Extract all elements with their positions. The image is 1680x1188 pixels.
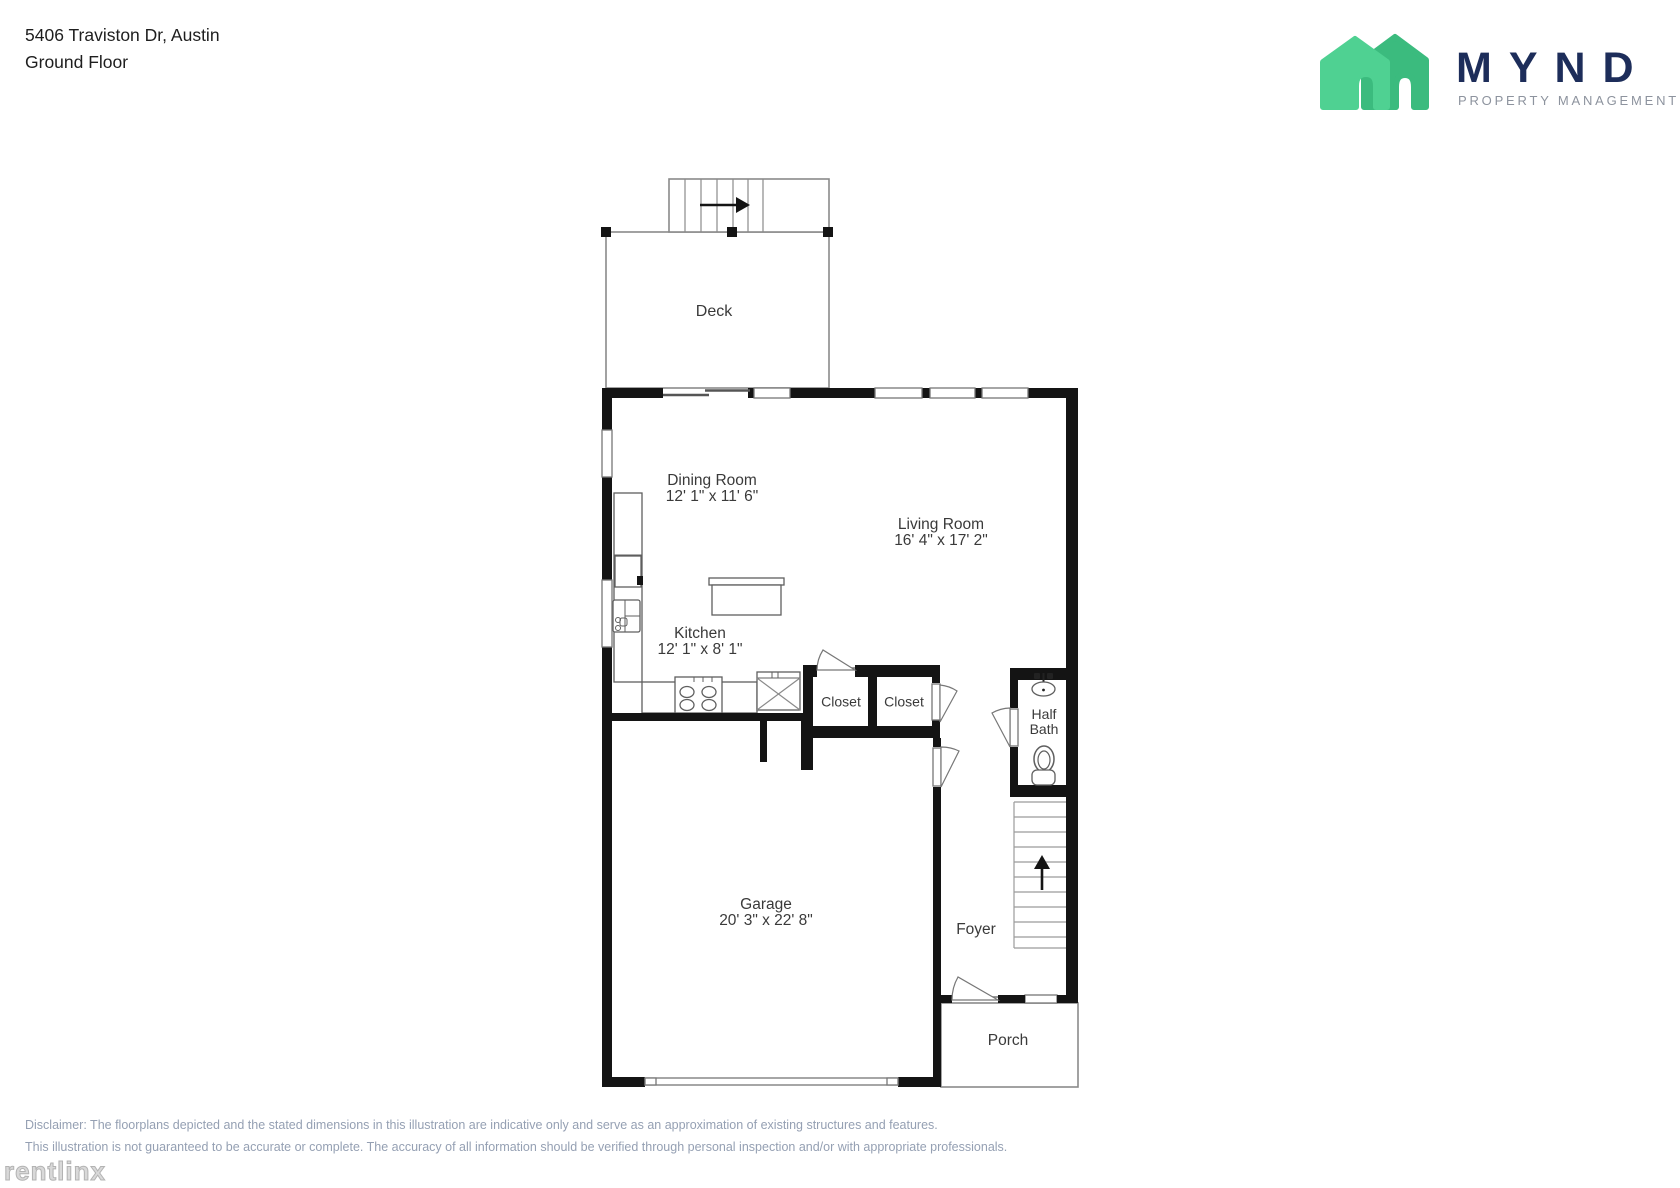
floorplan-drawing <box>0 0 1680 1188</box>
kitchen-island-icon <box>709 578 784 615</box>
stove-icon <box>675 677 722 713</box>
garage-label: Garage 20' 3" x 22' 8" <box>719 897 813 929</box>
bathroom-sink-icon <box>1032 673 1055 696</box>
deck-outline <box>601 179 833 388</box>
deck-label: Deck <box>696 304 732 320</box>
foyer-label: Foyer <box>956 922 996 938</box>
rentlinx-watermark: rentlinx <box>4 1156 106 1187</box>
stairs-up-arrow-icon <box>1034 855 1050 890</box>
pantry-icon <box>757 672 800 710</box>
half-bath-label: Half Bath <box>1030 707 1059 737</box>
kitchen-sink-icon <box>613 600 640 632</box>
dining-room-label: Dining Room 12' 1" x 11' 6" <box>666 473 758 505</box>
closet-1-label: Closet <box>821 695 861 710</box>
disclaimer-line-2: This illustration is not guaranteed to b… <box>25 1136 1007 1158</box>
dining-room-dimensions: 12' 1" x 11' 6" <box>666 489 758 505</box>
garage-dimensions: 20' 3" x 22' 8" <box>719 913 813 929</box>
toilet-icon <box>1032 746 1055 785</box>
disclaimer-line-1: Disclaimer: The floorplans depicted and … <box>25 1114 1007 1136</box>
closet-2-label: Closet <box>884 695 924 710</box>
interior-stairs <box>1014 802 1066 948</box>
living-room-dimensions: 16' 4" x 17' 2" <box>894 533 988 549</box>
kitchen-dimensions: 12' 1" x 8' 1" <box>657 642 742 658</box>
kitchen-label: Kitchen 12' 1" x 8' 1" <box>657 626 742 658</box>
floorplan-page: 5406 Traviston Dr, Austin Ground Floor M… <box>0 0 1680 1188</box>
living-room-label: Living Room 16' 4" x 17' 2" <box>894 517 988 549</box>
disclaimer: Disclaimer: The floorplans depicted and … <box>25 1114 1007 1158</box>
porch-label: Porch <box>988 1033 1029 1049</box>
